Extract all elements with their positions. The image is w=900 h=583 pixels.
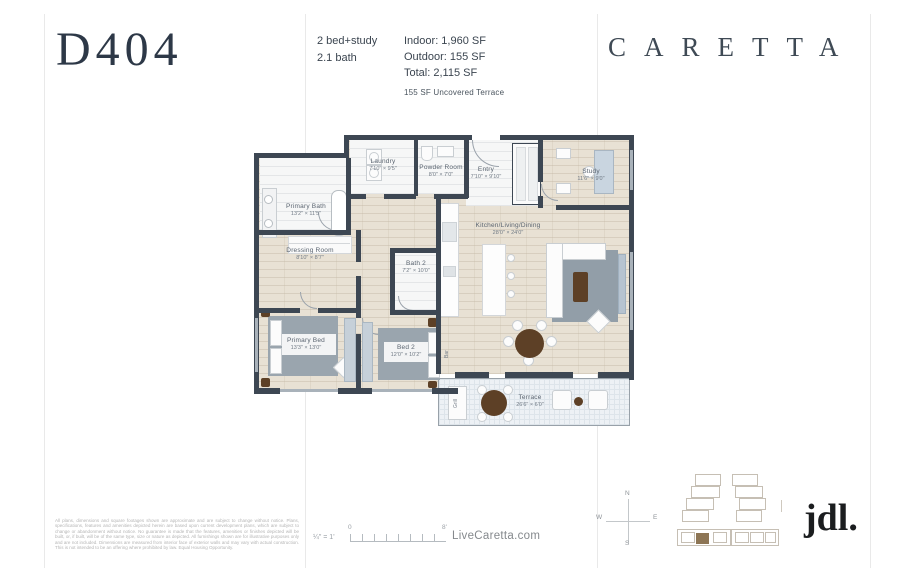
room-label-primary-bath: Primary Bath 13'2" × 11'5"	[266, 203, 346, 218]
room-label-kitchen-living-dining: Kitchen/Living/Dining 28'0" × 24'0"	[450, 222, 566, 237]
scale-bar	[350, 534, 446, 542]
closet-section-icon	[528, 147, 538, 201]
side-table-icon	[574, 397, 583, 406]
wall	[256, 230, 351, 235]
wall	[538, 140, 543, 182]
keyplan-unit-icon	[735, 532, 749, 543]
compass-west-label: W	[596, 514, 602, 521]
legal-disclaimer: All plans, dimensions and square footage…	[55, 518, 299, 550]
stool-icon	[507, 290, 515, 298]
keyplan-floor-icon	[735, 486, 763, 498]
wall	[556, 205, 634, 210]
closet-icon	[362, 322, 373, 382]
page-rule-left	[44, 14, 45, 568]
room-name: Dressing Room	[270, 247, 350, 255]
window	[255, 318, 258, 372]
stool-icon	[507, 254, 515, 262]
keyplan-floor-icon	[739, 498, 766, 510]
unit-spec: 2 bed+study 2.1 bath	[317, 33, 377, 67]
sink-icon	[437, 146, 454, 157]
room-label-bed2: Bed 2 12'0" × 10'2"	[384, 344, 428, 359]
keyplan-floor-icon	[736, 510, 762, 522]
window	[280, 389, 338, 392]
scale-ratio-label: ¼" = 1'	[313, 534, 335, 541]
wall	[350, 194, 366, 199]
area-note: 155 SF Uncovered Terrace	[404, 85, 504, 101]
window	[630, 252, 633, 330]
compass-north-label: N	[625, 490, 630, 497]
keyplan-floor-icon	[682, 510, 709, 522]
room-name: Entry	[458, 166, 514, 174]
wall	[455, 372, 489, 378]
wall	[436, 198, 441, 374]
room-name: Primary Bath	[266, 203, 346, 211]
spec-baths: 2.1 bath	[317, 50, 377, 67]
nightstand-icon	[428, 381, 437, 388]
keyplan-unit-icon	[750, 532, 764, 543]
dining-table-icon	[515, 329, 544, 358]
area-total: Total: 2,115 SF	[404, 65, 504, 81]
sofa-chaise-icon	[546, 243, 563, 318]
toilet-icon	[421, 146, 433, 161]
keyplan-floor-icon	[732, 474, 758, 486]
room-name: Study	[558, 168, 624, 176]
side-chair-icon	[556, 183, 571, 194]
dining-chair-icon	[512, 320, 523, 331]
scale-start-label: 0	[348, 524, 352, 531]
closet-section-icon	[516, 147, 526, 201]
dining-chair-icon	[546, 336, 557, 347]
wall	[432, 388, 458, 394]
pillow-icon	[270, 348, 282, 374]
wall	[505, 372, 573, 378]
room-label-study: Study 11'6" × 9'0"	[558, 168, 624, 183]
brand-logotype: CARETTA	[608, 32, 856, 63]
kitchen-sink-icon	[443, 266, 456, 277]
window	[372, 389, 432, 392]
room-dims: 12'0" × 10'2"	[384, 352, 428, 359]
wardrobe-rod-icon	[288, 243, 350, 244]
coffee-table-icon	[573, 272, 588, 302]
wall	[256, 153, 348, 158]
wall	[390, 248, 436, 253]
room-label-laundry: Laundry 7'10" × 9'5"	[352, 158, 414, 173]
scale-end-label: 8'	[442, 524, 447, 531]
wall	[356, 276, 361, 318]
window	[630, 150, 633, 190]
keyplan-floor-icon	[686, 498, 714, 510]
room-name: Bath 2	[398, 260, 434, 268]
wall	[356, 230, 361, 262]
wall	[434, 194, 468, 199]
room-dims: 26'6" × 6'0"	[494, 402, 566, 409]
wall	[384, 194, 416, 199]
room-name: Terrace	[494, 394, 566, 402]
room-dims: 7'10" × 9'10"	[458, 174, 514, 181]
sink-icon	[264, 219, 273, 228]
area-outdoor: Outdoor: 155 SF	[404, 49, 504, 65]
wall	[318, 308, 360, 313]
room-dims: 8'10" × 8'7"	[270, 255, 350, 262]
room-dims: 11'6" × 9'0"	[558, 176, 624, 183]
keyplan-unit-icon	[681, 532, 695, 543]
room-dims: 7'10" × 9'5"	[352, 166, 414, 173]
bar-label: Bar	[444, 350, 450, 358]
tv-console-icon	[618, 254, 626, 314]
kitchen-island-icon	[482, 244, 506, 316]
wall	[338, 388, 372, 394]
nightstand-icon	[261, 378, 270, 387]
keyplan-unit-icon	[713, 532, 727, 543]
kitchen-counter-icon	[440, 203, 459, 317]
keyplan-highlighted-unit	[696, 533, 709, 544]
website-link[interactable]: LiveCaretta.com	[452, 530, 540, 542]
room-name: Bed 2	[384, 344, 428, 352]
room-name: Laundry	[352, 158, 414, 166]
room-label-primary-bed: Primary Bed 13'3" × 13'0"	[268, 337, 344, 352]
room-dims: 13'3" × 13'0"	[268, 345, 344, 352]
room-label-bath2: Bath 2 7'2" × 10'0"	[398, 260, 434, 275]
wall	[356, 334, 361, 390]
wall	[344, 135, 349, 158]
compass-east-label: E	[653, 514, 657, 521]
unit-number: D404	[56, 22, 183, 77]
terrace-chair-icon	[503, 412, 513, 422]
closet-icon	[344, 318, 356, 382]
wall	[344, 135, 472, 140]
dining-chair-icon	[503, 336, 514, 347]
side-chair-icon	[556, 148, 571, 159]
room-dims: 7'2" × 10'0"	[398, 268, 434, 275]
wall	[500, 135, 634, 140]
keyplan-floor-icon	[691, 486, 720, 498]
room-dims: 28'0" × 24'0"	[450, 230, 566, 237]
developer-logo: jdl.	[804, 496, 858, 540]
wall	[256, 388, 280, 394]
compass-south-label: S	[625, 540, 629, 547]
wall	[598, 372, 634, 378]
wall	[390, 248, 395, 314]
lounge-chair-icon	[588, 390, 608, 410]
page-rule-right	[870, 14, 871, 568]
wall	[256, 308, 300, 313]
keyplan-floor-icon	[695, 474, 721, 486]
room-label-terrace: Terrace 26'6" × 6'0"	[494, 394, 566, 409]
room-dims: 13'2" × 11'5"	[266, 211, 346, 218]
area-indoor: Indoor: 1,960 SF	[404, 33, 504, 49]
wall	[538, 196, 543, 208]
room-name: Primary Bed	[268, 337, 344, 345]
spec-beds: 2 bed+study	[317, 33, 377, 50]
compass-axis	[628, 499, 629, 543]
grill-label: Grill	[453, 399, 459, 408]
room-name: Kitchen/Living/Dining	[450, 222, 566, 230]
room-label-dressing: Dressing Room 8'10" × 8'7"	[270, 247, 350, 262]
keyplan-tick	[781, 500, 782, 512]
unit-areas: Indoor: 1,960 SF Outdoor: 155 SF Total: …	[404, 33, 504, 101]
stool-icon	[507, 272, 515, 280]
wall	[390, 310, 436, 315]
keyplan-unit-icon	[765, 532, 776, 543]
room-label-entry: Entry 7'10" × 9'10"	[458, 166, 514, 181]
dining-chair-icon	[536, 320, 547, 331]
